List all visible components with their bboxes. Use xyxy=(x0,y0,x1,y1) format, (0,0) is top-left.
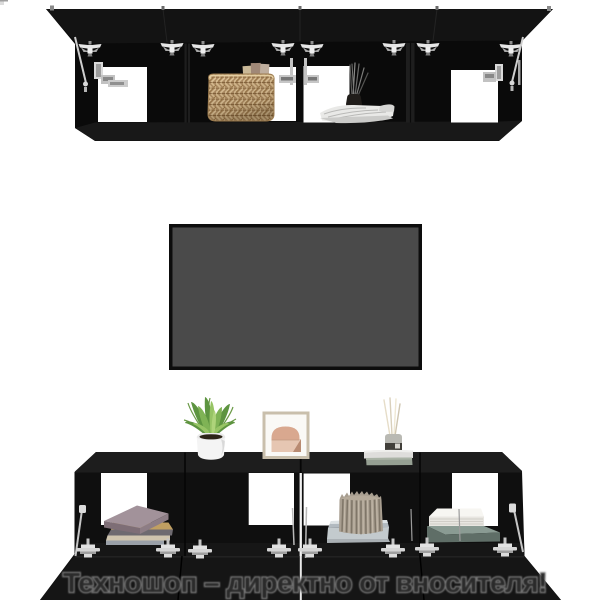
svg-text:Техношоп – директно от вносите: Техношоп – директно от вносителя! xyxy=(63,567,547,598)
